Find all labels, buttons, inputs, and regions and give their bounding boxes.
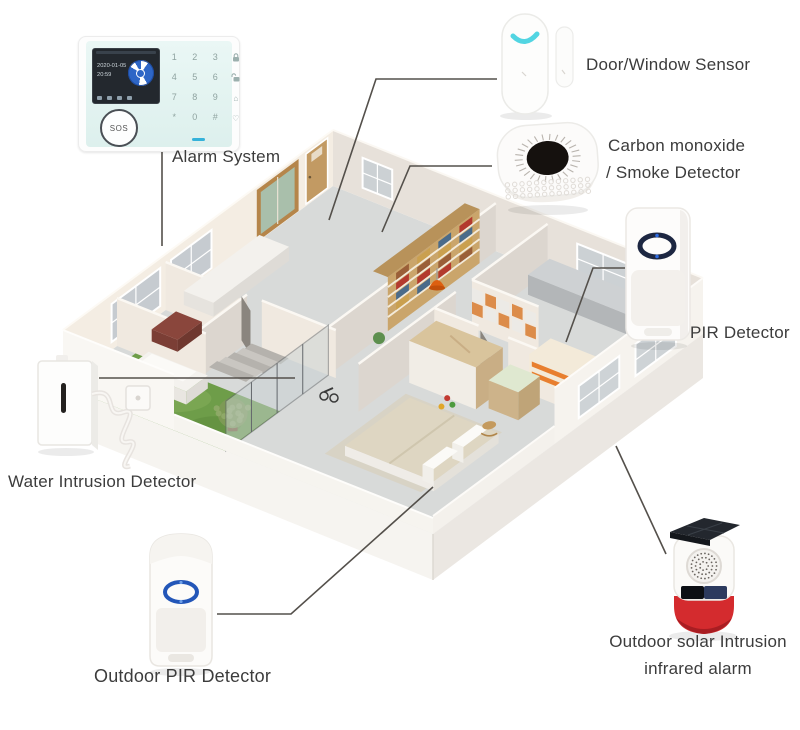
- label-co-line2: / Smoke Detector: [606, 163, 741, 183]
- home-mode-icon: ⌂: [233, 88, 238, 106]
- door-window-sensor-image: [500, 14, 573, 120]
- water-sensor-slot: [61, 383, 66, 413]
- label-outdoor-pir: Outdoor PIR Detector: [94, 666, 271, 687]
- key-4: 4: [172, 72, 177, 82]
- pir-detector-image: [626, 208, 690, 350]
- screen-statusbar: [96, 51, 156, 54]
- alarm-keypad: 123456789⌂*0#♡: [164, 47, 246, 127]
- key-2: 2: [192, 52, 197, 62]
- sos-label: SOS: [110, 124, 128, 133]
- screen-menu-icons: [97, 96, 155, 100]
- label-co-line1: Carbon monoxide: [608, 136, 745, 156]
- key-#: #: [213, 112, 218, 122]
- key-1: 1: [172, 52, 177, 62]
- globe-dot-icon: [136, 69, 145, 78]
- arm-lock-icon: [232, 53, 240, 62]
- plant: [373, 332, 385, 344]
- key-7: 7: [172, 92, 177, 102]
- screen-date: 2020-01-05: [97, 63, 126, 69]
- label-solar-line1: Outdoor solar Intrusion: [596, 632, 800, 652]
- disarm-unlock-icon: [231, 73, 241, 82]
- touch-dash-icon: [192, 138, 205, 141]
- label-solar-line2: infrared alarm: [596, 659, 800, 679]
- alarm-panel-face: 2020-01-05 20:59 SOS 123456789⌂*0#♡: [86, 41, 232, 147]
- heart-sos-icon: ♡: [232, 108, 239, 126]
- callout-solar: [616, 446, 666, 554]
- product-diagram: 2020-01-05 20:59 SOS 123456789⌂*0#♡ Alar…: [0, 0, 800, 730]
- alarm-panel-screen: 2020-01-05 20:59: [92, 48, 160, 104]
- label-door-window: Door/Window Sensor: [586, 55, 750, 75]
- label-water: Water Intrusion Detector: [8, 472, 196, 492]
- toys: [449, 402, 455, 408]
- solar-siren-image: [669, 518, 740, 641]
- screen-time: 20:59: [97, 72, 111, 78]
- outdoor-pir-image: [150, 534, 212, 676]
- label-pir: PIR Detector: [690, 323, 790, 343]
- key-5: 5: [192, 72, 197, 82]
- key-8: 8: [192, 92, 197, 102]
- label-alarm-system: Alarm System: [172, 147, 280, 167]
- sos-button: SOS: [100, 109, 138, 147]
- siren-red-skirt: [674, 596, 734, 634]
- key-*: *: [172, 112, 176, 122]
- key-0: 0: [192, 112, 197, 122]
- key-3: 3: [213, 52, 218, 62]
- key-6: 6: [213, 72, 218, 82]
- toys: [444, 395, 450, 401]
- toys: [438, 404, 444, 410]
- ir-window: [681, 586, 704, 599]
- alarm-panel-image: 2020-01-05 20:59 SOS 123456789⌂*0#♡: [78, 36, 240, 152]
- key-9: 9: [213, 92, 218, 102]
